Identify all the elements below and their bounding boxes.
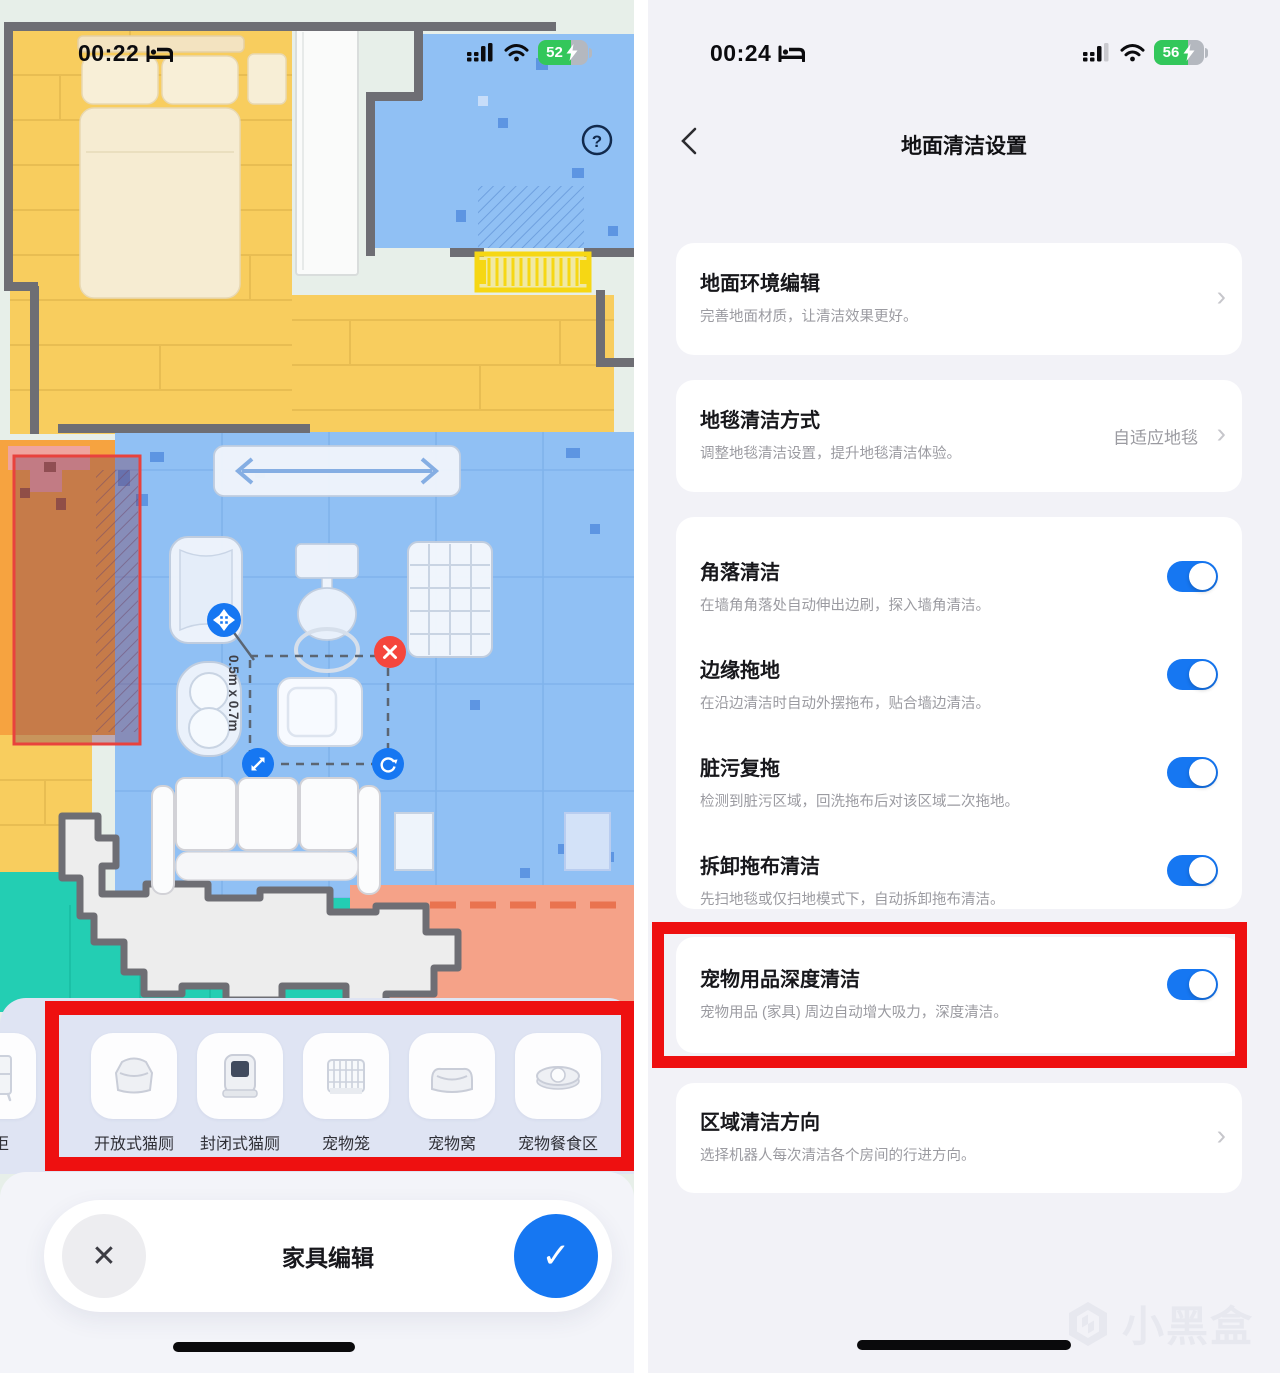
chevron-right-icon [1217, 417, 1226, 449]
tray-item-label: 头柜 [0, 1130, 9, 1154]
card-carpet-mode[interactable]: 地毯清洁方式 调整地毯清洁设置，提升地毯清洁体验。 自适应地毯 [676, 380, 1242, 492]
pet-bed-icon [409, 1033, 495, 1119]
card-value: 自适应地毯 [1113, 424, 1198, 449]
right-screenshot-floor-settings: 00:24 [648, 0, 1280, 1373]
setting-row-edge-mop: 边缘拖地 在沿边清洁时自动外摆拖布，贴合墙边清洁。 [676, 633, 1242, 731]
chevron-right-icon [1217, 1119, 1226, 1151]
card-title: 区域清洁方向 [700, 1106, 1218, 1135]
wifi-icon [504, 44, 529, 62]
selection-dimension-label: 0.5m x 0.7m [226, 655, 241, 732]
virtual-wall-fence[interactable] [477, 254, 589, 290]
right-status-bar: 00:24 [648, 40, 1280, 72]
tray-item-label: 宠物餐食区 [518, 1130, 598, 1154]
furniture-drying-rack[interactable] [214, 446, 460, 496]
closed-litter-box-icon [197, 1033, 283, 1119]
right-status-icons: 56 [1083, 40, 1208, 65]
watermark-text: 小黑盒 [1122, 1293, 1254, 1354]
tray-items-row: 开放式猫厕 封闭式猫厕 [91, 1033, 601, 1154]
tray-item-pet-bed[interactable]: 宠物窝 [409, 1033, 495, 1154]
card-toggle-group: 角落清洁 在墙角角落处自动伸出边刷，探入墙角清洁。 边缘拖地 在沿边清洁时自动外… [676, 517, 1242, 909]
rotate-handle[interactable] [372, 748, 404, 780]
setting-title: 脏污复拖 [700, 752, 1218, 781]
resize-handle[interactable] [242, 748, 274, 780]
xiaoheihe-logo-icon [1064, 1300, 1112, 1348]
pet-feeding-area-icon [515, 1033, 601, 1119]
tray-item-pet-cage[interactable]: 宠物笼 [303, 1033, 389, 1154]
furniture-sofa[interactable] [152, 778, 380, 894]
charging-bolt-icon [1183, 44, 1195, 61]
mattress [80, 108, 240, 298]
bedtime-mode-icon [778, 45, 805, 62]
setting-row-detach-mop: 拆卸拖布清洁 先扫地毯或仅扫地模式下，自动拆卸拖布清洁。 [676, 829, 1242, 927]
chevron-right-icon [1217, 280, 1226, 312]
setting-title: 边缘拖地 [700, 654, 1218, 683]
selected-furniture[interactable] [278, 678, 362, 746]
toggle-edge-mop[interactable] [1167, 659, 1218, 690]
home-indicator-left[interactable] [173, 1342, 355, 1352]
nightstand-icon [0, 1033, 36, 1119]
tray-item-label: 开放式猫厕 [94, 1130, 174, 1154]
left-status-icons: 52 [467, 40, 592, 65]
window-rect [565, 813, 610, 870]
battery-percent: 56 [1163, 44, 1180, 61]
setting-title: 角落清洁 [700, 556, 1218, 585]
card-zone-direction[interactable]: 区域清洁方向 选择机器人每次清洁各个房间的行进方向。 [676, 1083, 1242, 1193]
setting-row-corner-clean: 角落清洁 在墙角角落处自动伸出边刷，探入墙角清洁。 [676, 535, 1242, 633]
robot-vacuum-map[interactable]: 0.5m x 0.7m [0, 0, 634, 1012]
confirm-button[interactable] [514, 1214, 598, 1298]
setting-title: 拆卸拖布清洁 [700, 850, 1218, 879]
setting-title: 宠物用品深度清洁 [700, 963, 1218, 992]
furniture-edit-bar: 家具编辑 [44, 1200, 612, 1312]
tray-item-pet-feeding-area[interactable]: 宠物餐食区 [515, 1033, 601, 1154]
setting-row-dirty-remop: 脏污复拖 检测到脏污区域，回洗拖布后对该区域二次拖地。 [676, 731, 1242, 829]
tray-item-open-litter-box[interactable]: 开放式猫厕 [91, 1033, 177, 1154]
tray-item-nightstand-partial[interactable]: 头柜 [0, 1033, 36, 1154]
carpet-hatch-area [478, 186, 584, 248]
card-subtitle: 完善地面材质，让清洁效果更好。 [700, 305, 1218, 326]
card-subtitle: 选择机器人每次清洁各个房间的行进方向。 [700, 1144, 1218, 1165]
help-label: ? [592, 132, 602, 151]
setting-subtitle: 先扫地毯或仅扫地模式下，自动拆卸拖布清洁。 [700, 888, 1218, 909]
tray-item-label: 封闭式猫厕 [200, 1130, 280, 1154]
right-clock: 00:24 [710, 40, 805, 67]
tray-item-label: 宠物笼 [322, 1130, 370, 1154]
watermark: 小黑盒 [1064, 1293, 1254, 1354]
cellular-signal-icon [467, 43, 495, 62]
left-status-bar: 00:22 [0, 40, 634, 72]
pet-cage-icon [303, 1033, 389, 1119]
home-indicator-right[interactable] [857, 1340, 1071, 1350]
furniture-grid-mat[interactable] [408, 542, 492, 657]
cancel-button[interactable] [62, 1214, 146, 1298]
toggle-detach-mop[interactable] [1167, 855, 1218, 886]
toggle-corner-clean[interactable] [1167, 561, 1218, 592]
furniture-tray: 头柜 开放式猫厕 [0, 998, 634, 1174]
setting-subtitle: 在沿边清洁时自动外摆拖布，贴合墙边清洁。 [700, 692, 1218, 713]
page-title: 地面清洁设置 [648, 130, 1280, 160]
delete-handle[interactable] [374, 636, 406, 668]
tray-item-closed-litter-box[interactable]: 封闭式猫厕 [197, 1033, 283, 1154]
card-floor-env-edit[interactable]: 地面环境编辑 完善地面材质，让清洁效果更好。 [676, 243, 1242, 355]
card-title: 地面环境编辑 [700, 267, 1218, 296]
furniture-side-table[interactable] [395, 813, 433, 870]
setting-subtitle: 在墙角角落处自动伸出边刷，探入墙角清洁。 [700, 594, 1218, 615]
bedtime-mode-icon [146, 45, 173, 62]
no-go-zone[interactable] [14, 456, 140, 744]
move-handle[interactable] [207, 603, 241, 637]
open-litter-box-icon [91, 1033, 177, 1119]
battery-percent: 52 [546, 44, 563, 61]
toggle-pet-deep-clean[interactable] [1167, 969, 1218, 1000]
cellular-signal-icon [1083, 43, 1111, 62]
battery-icon: 56 [1154, 40, 1208, 65]
charging-bolt-icon [566, 44, 578, 61]
setting-subtitle: 检测到脏污区域，回洗拖布后对该区域二次拖地。 [700, 790, 1218, 811]
tray-item-label: 宠物窝 [428, 1130, 476, 1154]
card-pet-deep-clean: 宠物用品深度清洁 宠物用品 (家具) 周边自动增大吸力，深度清洁。 [676, 937, 1242, 1053]
toggle-dirty-remop[interactable] [1167, 757, 1218, 788]
setting-subtitle: 宠物用品 (家具) 周边自动增大吸力，深度清洁。 [700, 1001, 1218, 1022]
left-screenshot-map-editor: 0.5m x 0.7m [0, 0, 634, 1373]
left-clock: 00:22 [78, 40, 173, 67]
battery-icon: 52 [538, 40, 592, 65]
wifi-icon [1120, 44, 1145, 62]
